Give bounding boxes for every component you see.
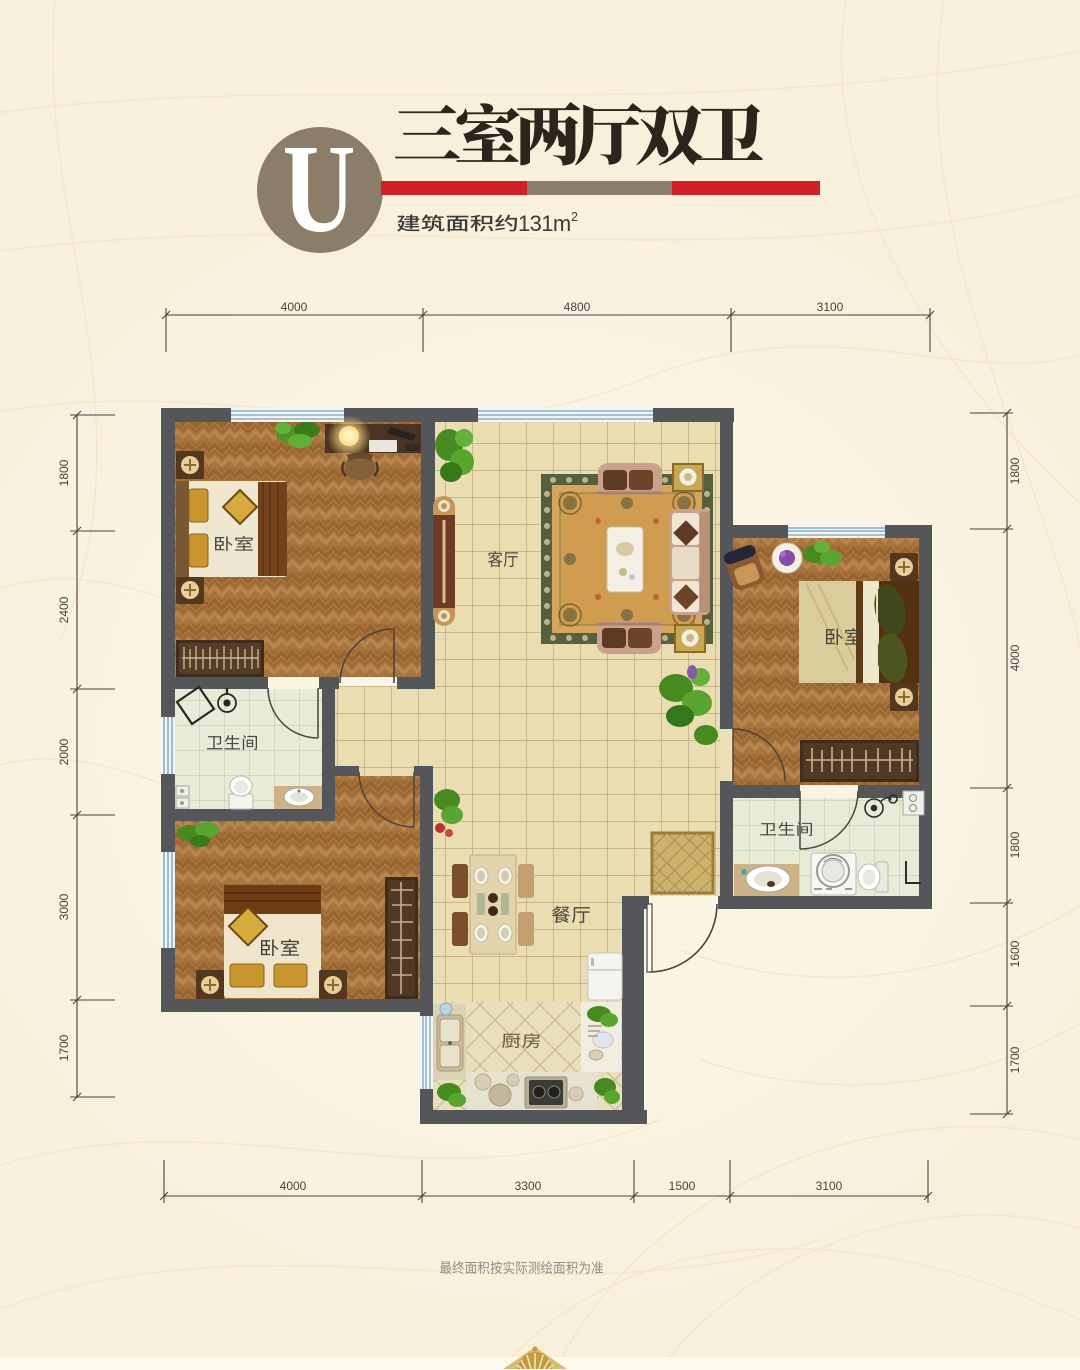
svg-text:2400: 2400 [57, 596, 71, 623]
svg-text:3100: 3100 [816, 1179, 843, 1193]
svg-text:1700: 1700 [57, 1034, 71, 1061]
svg-text:1800: 1800 [1008, 831, 1022, 858]
svg-text:3300: 3300 [515, 1179, 542, 1193]
svg-text:4000: 4000 [1008, 644, 1022, 671]
svg-text:4800: 4800 [564, 300, 591, 314]
svg-text:1700: 1700 [1008, 1046, 1022, 1073]
svg-text:1800: 1800 [57, 459, 71, 486]
svg-text:3000: 3000 [57, 893, 71, 920]
svg-text:1600: 1600 [1008, 940, 1022, 967]
svg-text:1500: 1500 [669, 1179, 696, 1193]
svg-text:2: 2 [571, 210, 578, 224]
svg-text:4000: 4000 [281, 300, 308, 314]
svg-text:1800: 1800 [1008, 457, 1022, 484]
svg-text:2000: 2000 [57, 738, 71, 765]
svg-text:4000: 4000 [280, 1179, 307, 1193]
svg-text:3100: 3100 [817, 300, 844, 314]
svg-text:131m: 131m [518, 211, 571, 236]
